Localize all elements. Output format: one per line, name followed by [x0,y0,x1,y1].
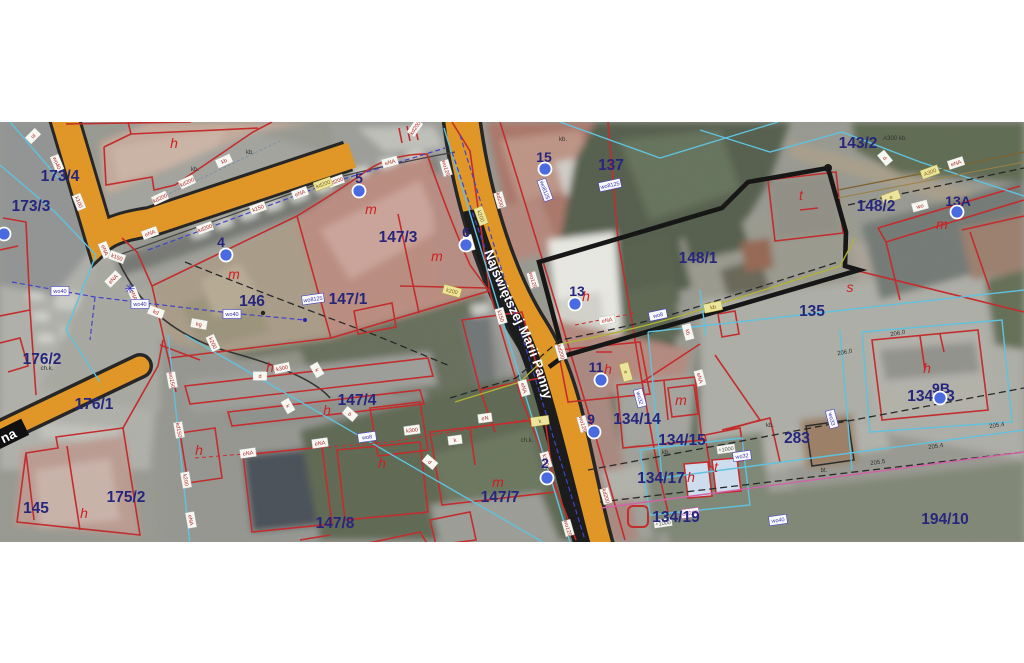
svg-text:148/1: 148/1 [679,250,718,267]
svg-text:h: h [923,360,931,376]
svg-text:134/19: 134/19 [652,509,700,526]
svg-text:134/14: 134/14 [613,411,661,428]
svg-text:147/8: 147/8 [316,515,355,532]
svg-text:s: s [847,279,854,295]
svg-text:2: 2 [541,455,549,471]
svg-text:194/10: 194/10 [921,511,968,528]
svg-text:h: h [80,505,88,521]
svg-text:kb.: kb. [191,167,199,173]
svg-text:h: h [170,135,178,151]
svg-text:5: 5 [355,170,363,186]
svg-text:135: 135 [799,303,825,320]
svg-text:m: m [492,474,504,490]
svg-text:h: h [687,469,695,485]
svg-text:134/17: 134/17 [637,470,684,487]
svg-text:h: h [323,402,331,418]
svg-text:kb.: kb. [766,423,774,429]
svg-text:175/2: 175/2 [107,489,146,506]
svg-text:h: h [195,442,203,458]
svg-text:bt.: bt. [821,468,828,474]
svg-text:283: 283 [784,430,810,447]
svg-text:h: h [582,288,590,304]
svg-text:146: 146 [239,293,265,310]
svg-text:137: 137 [598,157,624,174]
svg-text:176/1: 176/1 [75,396,114,413]
svg-text:h: h [604,361,612,377]
svg-text:kb.: kb. [662,450,670,456]
svg-text:m: m [431,248,443,264]
svg-text:h: h [266,359,274,375]
svg-text:A300 kb.: A300 kb. [883,136,907,142]
svg-text:m: m [675,392,687,408]
svg-text:11: 11 [589,359,604,375]
svg-text:148/2: 148/2 [857,198,896,215]
svg-text:m: m [936,216,948,232]
svg-text:173/4: 173/4 [41,168,80,185]
svg-text:147/4: 147/4 [338,392,377,409]
svg-text:4: 4 [217,234,225,250]
svg-text:h: h [378,455,386,471]
svg-text:m: m [228,266,240,282]
svg-text:m: m [365,201,377,217]
svg-text:✳: ✳ [125,281,136,296]
svg-text:147/3: 147/3 [379,229,418,246]
svg-text:9: 9 [587,411,595,427]
svg-text:kb.: kb. [559,137,567,143]
svg-text:6: 6 [462,224,470,240]
svg-text:173/3: 173/3 [12,198,51,215]
svg-text:134/15: 134/15 [658,432,706,449]
svg-text:147/1: 147/1 [329,291,368,308]
svg-text:143/2: 143/2 [839,135,878,152]
svg-text:kb.: kb. [246,150,254,156]
svg-text:ch.k.: ch.k. [41,366,54,372]
svg-text:ch.k.: ch.k. [521,438,534,444]
svg-text:145: 145 [23,500,49,517]
svg-text:147/7: 147/7 [481,489,520,506]
